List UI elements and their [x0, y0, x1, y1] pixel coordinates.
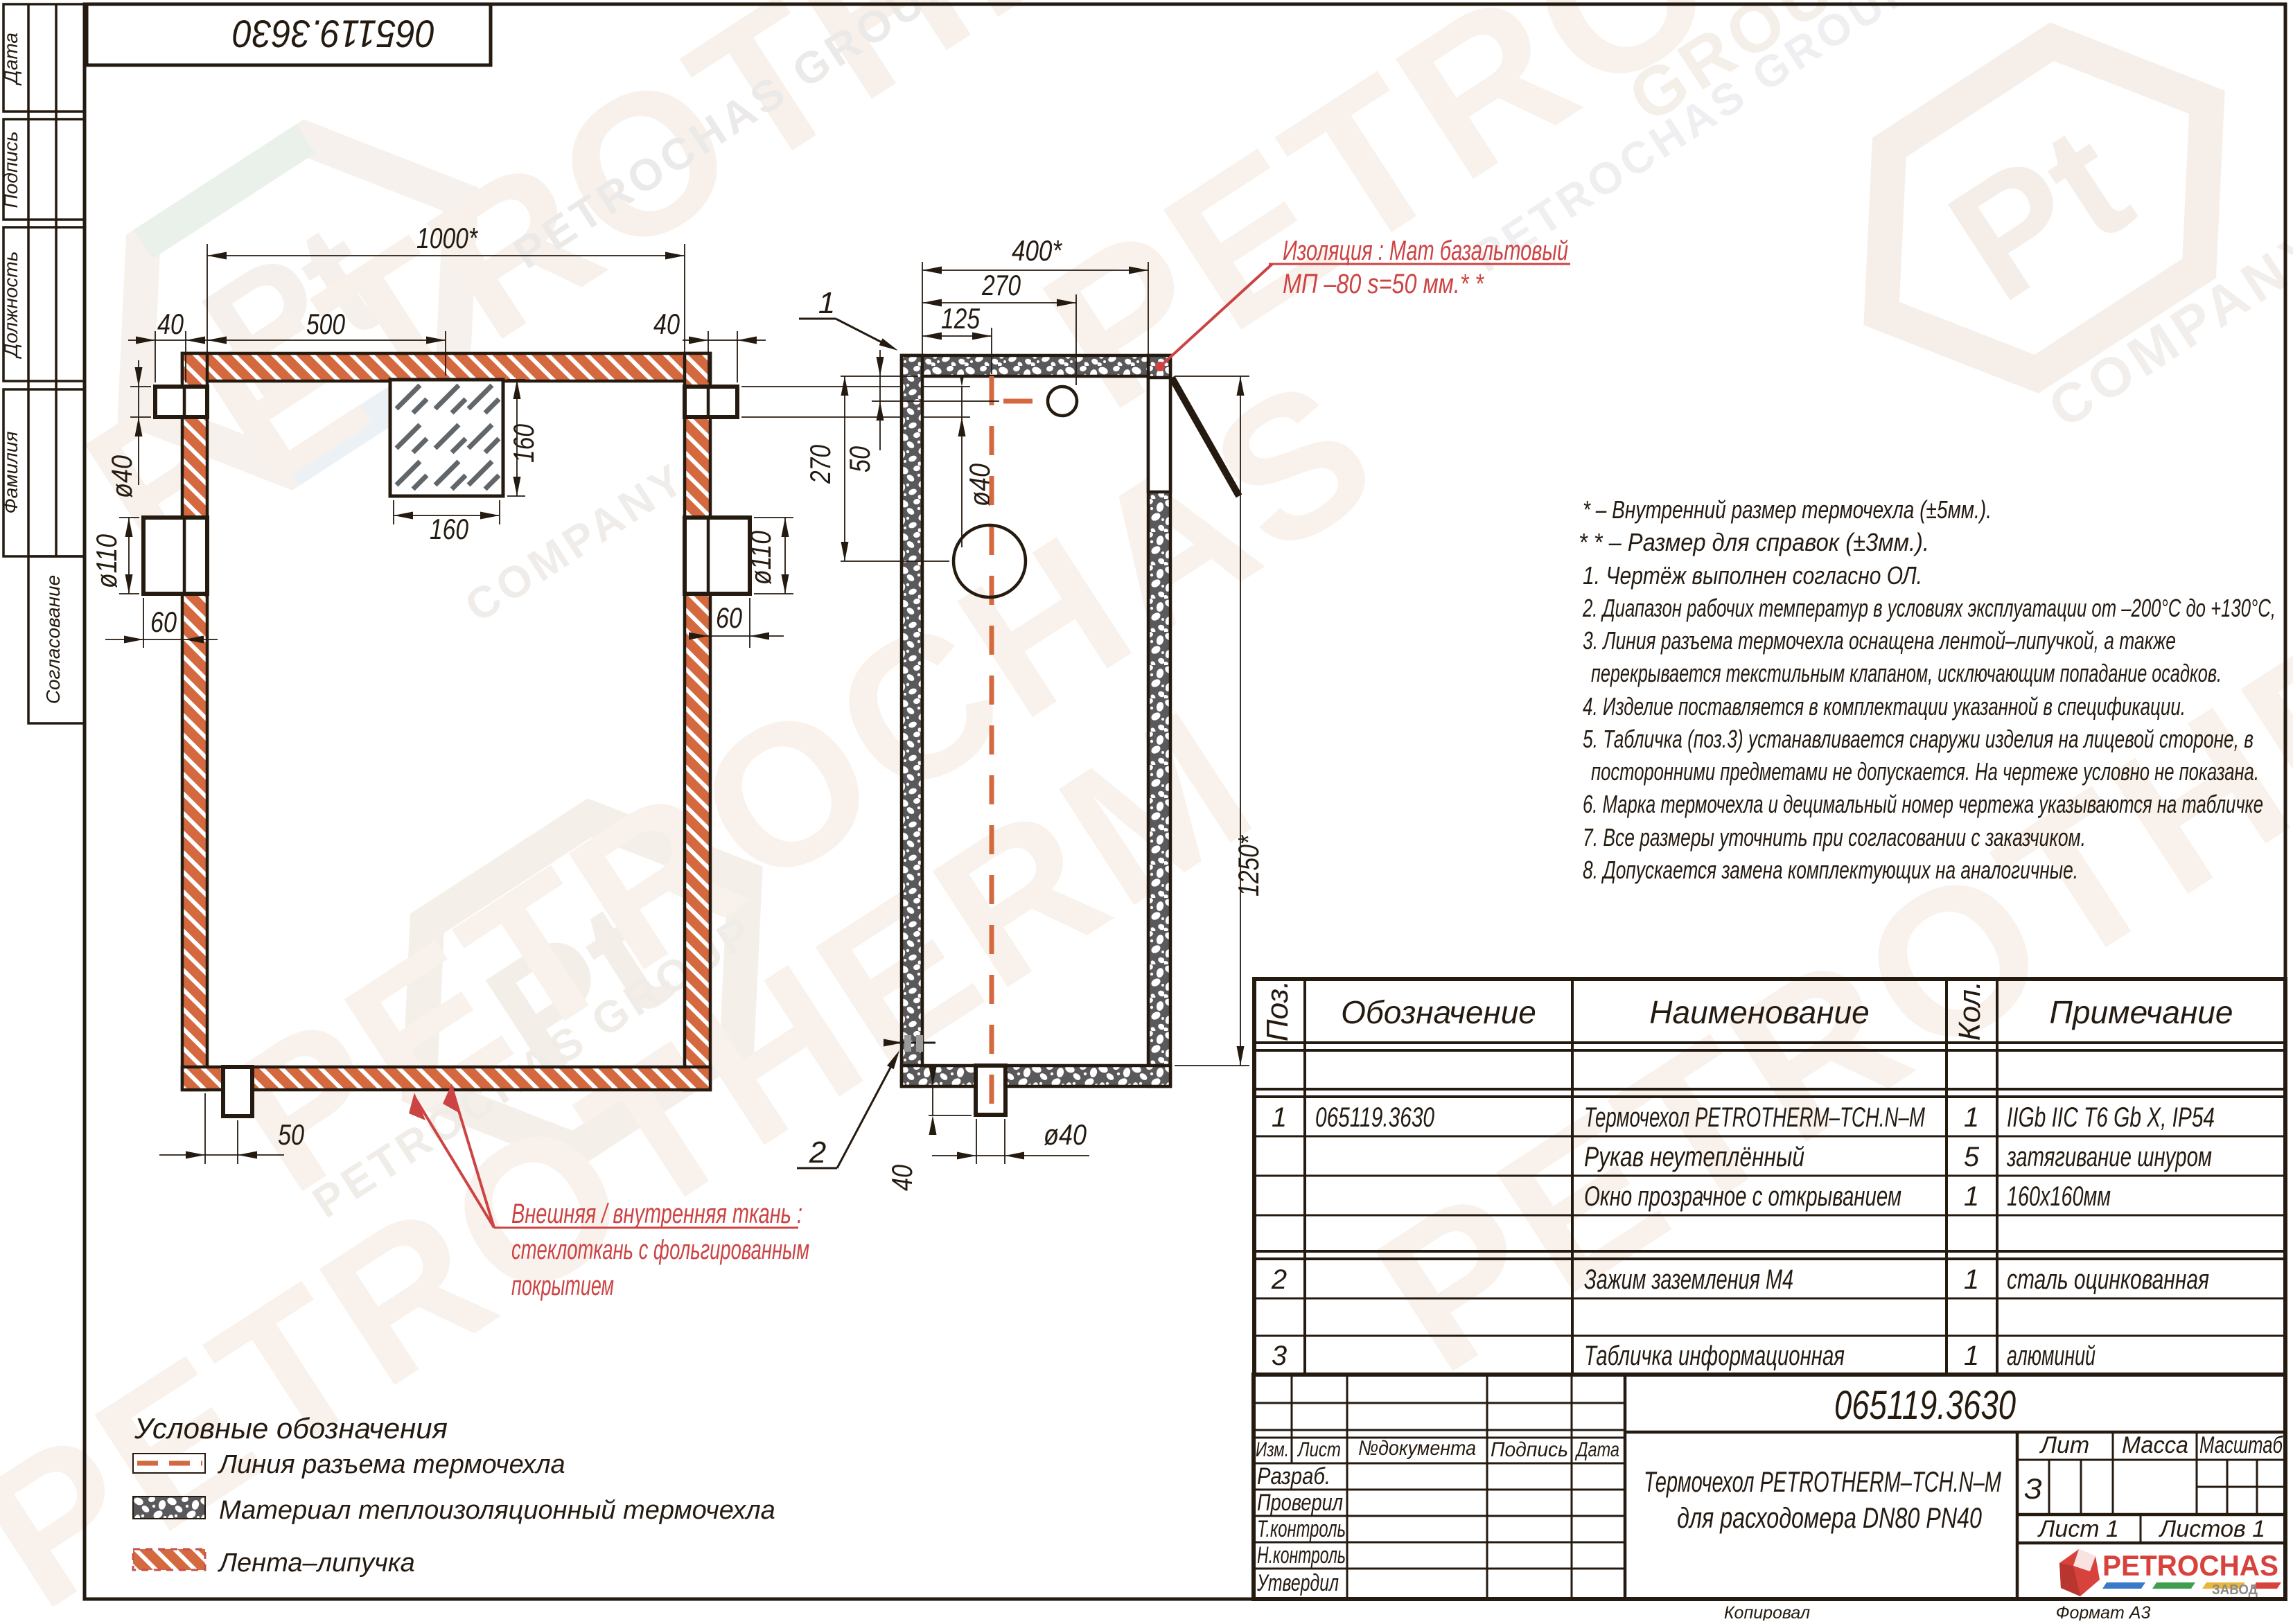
svg-text:Лента–липучка: Лента–липучка	[217, 1548, 415, 1578]
svg-text:ø40: ø40	[1044, 1118, 1087, 1151]
svg-text:2: 2	[809, 1136, 826, 1170]
svg-text:Зажим заземления М4: Зажим заземления М4	[1584, 1264, 1793, 1295]
svg-text:Лит: Лит	[2039, 1432, 2090, 1458]
svg-text:5: 5	[1964, 1142, 1980, 1172]
svg-text:7. Все размеры уточнить при со: 7. Все размеры уточнить при согласовании…	[1583, 823, 2086, 851]
svg-text:ø40: ø40	[105, 454, 138, 498]
svg-text:1: 1	[1272, 1102, 1287, 1133]
svg-text:Копировал: Копировал	[1724, 1603, 1810, 1621]
svg-text:60: 60	[716, 601, 743, 634]
svg-text:* * – Размер для справок (±3м: * * – Размер для справок (±3мм.).	[1579, 528, 1929, 556]
svg-text:посторонними предметами не доп: посторонними предметами не допускается. …	[1591, 757, 2259, 786]
svg-text:Условные обозначения: Условные обозначения	[134, 1412, 448, 1445]
svg-text:8. Допускается замена комплект: 8. Допускается замена комплектующих на а…	[1583, 856, 2078, 884]
svg-text:400*: 400*	[1012, 234, 1062, 267]
svg-text:Лист 1: Лист 1	[2037, 1516, 2119, 1542]
svg-text:Н.контроль: Н.контроль	[1257, 1542, 1346, 1569]
svg-text:60: 60	[150, 606, 177, 638]
svg-text:алюминий: алюминий	[2007, 1341, 2096, 1371]
svg-text:Рукав неутеплённый: Рукав неутеплённый	[1584, 1142, 1804, 1172]
svg-text:Подпись: Подпись	[0, 131, 21, 208]
svg-text:Масштаб: Масштаб	[2199, 1432, 2283, 1458]
svg-text:Линия разъема термочехла: Линия разъема термочехла	[217, 1450, 565, 1479]
svg-text:Наименование: Наименование	[1649, 994, 1869, 1030]
svg-text:065119.3630: 065119.3630	[1315, 1102, 1434, 1133]
svg-text:Примечание: Примечание	[2050, 994, 2233, 1030]
svg-text:Разраб.: Разраб.	[1257, 1463, 1330, 1490]
svg-text:2: 2	[1271, 1264, 1287, 1295]
svg-text:Масса: Масса	[2122, 1432, 2188, 1458]
svg-text:ЗАВОД: ЗАВОД	[2212, 1582, 2258, 1598]
svg-text:160х160мм: 160х160мм	[2007, 1181, 2111, 1212]
svg-text:Материал теплоизоляционный тер: Материал теплоизоляционный термочехла	[219, 1496, 775, 1525]
svg-text:* – Внутренний размер термоче: * – Внутренний размер термочехла (±5мм.)…	[1583, 495, 1992, 524]
svg-text:IIGb IIC T6 Gb X, IP54: IIGb IIC T6 Gb X, IP54	[2007, 1102, 2215, 1133]
svg-text:Изоляция : Мат базальтовый: Изоляция : Мат базальтовый	[1283, 236, 1568, 266]
svg-text:Подпись: Подпись	[1491, 1438, 1568, 1461]
svg-text:Внешняя / внутренняя ткань :: Внешняя / внутренняя ткань :	[511, 1199, 802, 1229]
svg-text:160: 160	[430, 513, 469, 545]
svg-text:1250*: 1250*	[1232, 835, 1265, 897]
svg-text:затягивание шнуром: затягивание шнуром	[2006, 1142, 2212, 1172]
svg-text:125: 125	[941, 302, 981, 335]
svg-text:Поз.: Поз.	[1260, 980, 1294, 1042]
svg-text:065119.3630: 065119.3630	[1834, 1383, 2016, 1428]
svg-text:6. Марка термочехла и децималь: 6. Марка термочехла и децимальный номер …	[1583, 790, 2263, 818]
svg-text:1: 1	[1964, 1341, 1979, 1371]
svg-text:Изм.: Изм.	[1256, 1438, 1289, 1461]
svg-text:Т.контроль: Т.контроль	[1257, 1516, 1346, 1542]
svg-text:ø110: ø110	[744, 530, 777, 585]
svg-text:1. Чертёж выполнен согласно ОЛ: 1. Чертёж выполнен согласно ОЛ.	[1583, 561, 1922, 590]
svg-text:Утвердил: Утвердил	[1256, 1570, 1339, 1596]
svg-text:PETROCHAS: PETROCHAS	[2102, 1549, 2278, 1582]
svg-text:40: 40	[886, 1164, 918, 1191]
svg-text:065119.3630: 065119.3630	[233, 12, 435, 56]
svg-text:Обозначение: Обозначение	[1341, 994, 1536, 1030]
svg-text:Термочехол PETROTHERM–TCH.N–M: Термочехол PETROTHERM–TCH.N–M	[1584, 1102, 1925, 1133]
svg-text:270: 270	[981, 269, 1021, 301]
svg-text:Окно прозрачное с открыванием: Окно прозрачное с открыванием	[1584, 1181, 1901, 1212]
svg-text:2. Диапазон рабочих температур: 2. Диапазон рабочих температур в условия…	[1582, 594, 2276, 622]
svg-text:1: 1	[818, 286, 835, 320]
svg-text:3. Линия разъема термочехла ос: 3. Линия разъема термочехла оснащена лен…	[1583, 626, 2176, 655]
svg-text:1: 1	[1964, 1181, 1979, 1212]
svg-text:50: 50	[843, 445, 876, 473]
svg-text:Формат А3: Формат А3	[2056, 1603, 2151, 1621]
svg-text:Дата: Дата	[1575, 1438, 1619, 1461]
svg-text:Табличка информационная: Табличка информационная	[1584, 1341, 1845, 1371]
svg-text:1: 1	[1964, 1102, 1979, 1133]
svg-text:З: З	[2024, 1472, 2042, 1505]
svg-text:Лист: Лист	[1297, 1438, 1341, 1461]
svg-text:№документа: №документа	[1358, 1437, 1476, 1460]
svg-text:перекрывается текстильным клап: перекрывается текстильным клапаном, искл…	[1591, 659, 2222, 687]
svg-text:Должность: Должность	[0, 251, 21, 360]
svg-text:Листов 1: Листов 1	[2159, 1516, 2265, 1542]
svg-text:40: 40	[157, 308, 184, 340]
svg-text:ø110: ø110	[90, 533, 123, 588]
svg-text:4. Изделие поставляется в комп: 4. Изделие поставляется в комплектации у…	[1583, 692, 2186, 721]
svg-text:Согласование: Согласование	[42, 575, 64, 704]
svg-text:Фамилия: Фамилия	[0, 432, 21, 514]
svg-text:50: 50	[278, 1118, 305, 1151]
svg-text:Термочехол PETROTHERM–TCH.N–M: Термочехол PETROTHERM–TCH.N–M	[1644, 1465, 2001, 1498]
svg-text:5. Табличка (поз.3) устанавлив: 5. Табличка (поз.3) устанавливается снар…	[1583, 725, 2254, 753]
svg-text:1: 1	[1964, 1264, 1979, 1295]
svg-text:для расходомера DN80 PN40: для расходомера DN80 PN40	[1677, 1501, 1982, 1534]
svg-text:МП –80 s=50 мм.* *: МП –80 s=50 мм.* *	[1283, 269, 1484, 299]
svg-text:покрытием: покрытием	[511, 1271, 614, 1301]
svg-text:500: 500	[306, 308, 346, 340]
svg-text:3: 3	[1272, 1341, 1287, 1371]
svg-text:40: 40	[653, 308, 680, 340]
svg-text:270: 270	[804, 444, 836, 484]
svg-text:сталь оцинкованная: сталь оцинкованная	[2007, 1264, 2209, 1295]
svg-text:Дата: Дата	[0, 33, 21, 86]
svg-text:Кол.: Кол.	[1953, 981, 1987, 1041]
svg-text:стеклоткань с фольгированным: стеклоткань с фольгированным	[511, 1235, 809, 1265]
svg-text:Проверил: Проверил	[1257, 1490, 1343, 1516]
svg-text:1000*: 1000*	[416, 222, 478, 254]
svg-text:160: 160	[507, 423, 540, 463]
